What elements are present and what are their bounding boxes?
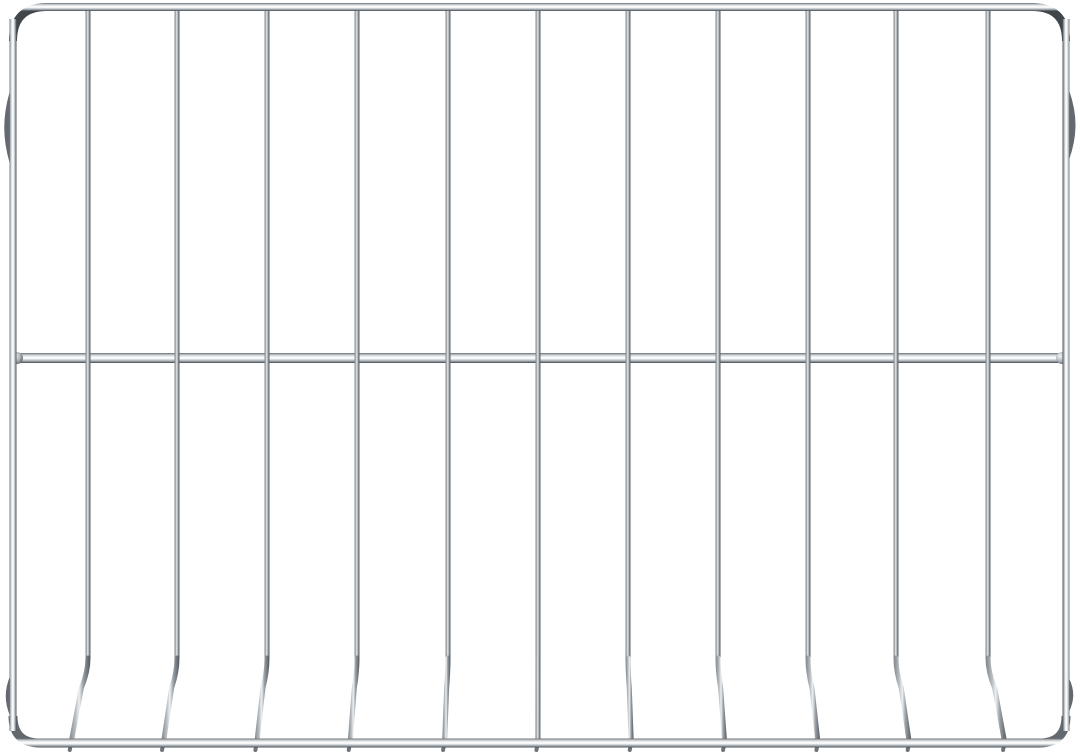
rack-vertical-wire-foot bbox=[718, 658, 725, 742]
rack-frame-stop-bump bbox=[1066, 680, 1070, 710]
rack-vertical-wire-foot bbox=[808, 658, 818, 742]
rack-vertical-wire-foot bbox=[350, 658, 357, 742]
rack-vertical-wire-foot bbox=[896, 658, 909, 742]
rack-vertical-wire-foot bbox=[257, 658, 267, 742]
oven-rack bbox=[0, 0, 1080, 755]
rack-vertical-wire-foot bbox=[628, 658, 631, 742]
rack-vertical-wire-foot bbox=[445, 658, 448, 742]
rack-vertical-wire-foot bbox=[164, 658, 177, 742]
product-photo bbox=[0, 0, 1080, 755]
rack-frame-stop-bump bbox=[9, 678, 13, 714]
rack-vertical-wire-foot bbox=[71, 658, 88, 742]
rack-vertical-wire-foot bbox=[988, 658, 1005, 742]
